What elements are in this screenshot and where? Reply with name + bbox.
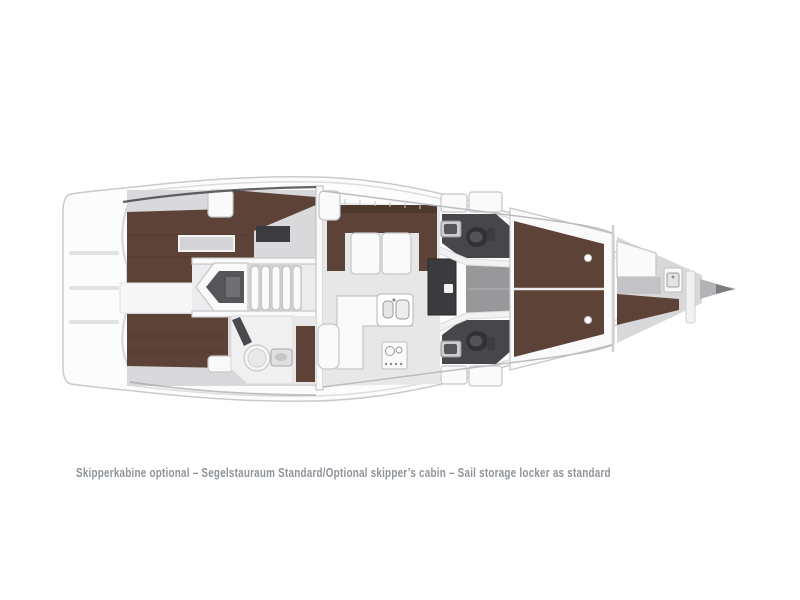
shower-tray-inner bbox=[248, 349, 266, 367]
berth-top bbox=[617, 241, 656, 277]
yacht-floorplan-drawing bbox=[0, 0, 800, 600]
counter bbox=[617, 277, 661, 294]
caption-text: Skipperkabine optional – Segelstauraum S… bbox=[76, 465, 611, 480]
skipper-cabin bbox=[617, 237, 734, 343]
platform-step-line bbox=[69, 320, 119, 324]
berth-shelf bbox=[179, 236, 234, 251]
step bbox=[251, 266, 259, 310]
toilet-tank bbox=[487, 337, 495, 350]
chain-locker bbox=[686, 271, 695, 323]
passage-floor bbox=[120, 283, 195, 313]
reading-lamp bbox=[585, 317, 592, 324]
sink bbox=[667, 273, 679, 287]
locker bbox=[208, 356, 233, 372]
toilet-tank bbox=[487, 228, 495, 241]
reading-lamp bbox=[585, 255, 592, 262]
locker bbox=[208, 190, 233, 217]
salon-locker bbox=[319, 191, 340, 220]
stove-knob bbox=[385, 363, 387, 365]
vanity-desk bbox=[256, 226, 290, 242]
step bbox=[262, 266, 270, 310]
locker bbox=[469, 192, 502, 212]
sink-basin bbox=[396, 300, 409, 319]
stove-knob bbox=[395, 363, 397, 365]
step bbox=[283, 266, 291, 310]
aft-head bbox=[231, 316, 293, 384]
faucet bbox=[672, 276, 675, 279]
salon-table-leaf bbox=[351, 233, 380, 274]
head-lower bbox=[438, 311, 512, 386]
shower-compartment bbox=[428, 259, 456, 315]
locker bbox=[469, 366, 502, 386]
faucet bbox=[392, 298, 395, 301]
corridor-wall bbox=[192, 258, 322, 264]
toilet-seat bbox=[470, 336, 483, 347]
galley-bench bbox=[296, 326, 315, 382]
owners-cabin bbox=[510, 208, 614, 370]
companionway-steps bbox=[251, 266, 301, 310]
door-handle bbox=[444, 284, 453, 293]
stove-knob bbox=[390, 363, 392, 365]
salon-table-leaf bbox=[382, 233, 411, 274]
stove-knob bbox=[400, 363, 402, 365]
engine-core bbox=[226, 277, 240, 297]
fore-corridor bbox=[466, 262, 512, 316]
galley-locker bbox=[318, 324, 339, 369]
head-upper bbox=[438, 192, 512, 267]
bow-tip bbox=[716, 284, 734, 294]
step bbox=[293, 266, 301, 310]
toilet-seat bbox=[470, 232, 483, 243]
platform-step-line bbox=[69, 251, 119, 255]
step bbox=[272, 266, 280, 310]
platform-step-line bbox=[69, 286, 119, 290]
sink-basin bbox=[383, 301, 393, 318]
sink bbox=[444, 224, 457, 234]
sink bbox=[275, 353, 287, 361]
sink bbox=[444, 344, 457, 354]
yacht-floorplan-figure: Skipperkabine optional – Segelstauraum S… bbox=[0, 0, 800, 600]
